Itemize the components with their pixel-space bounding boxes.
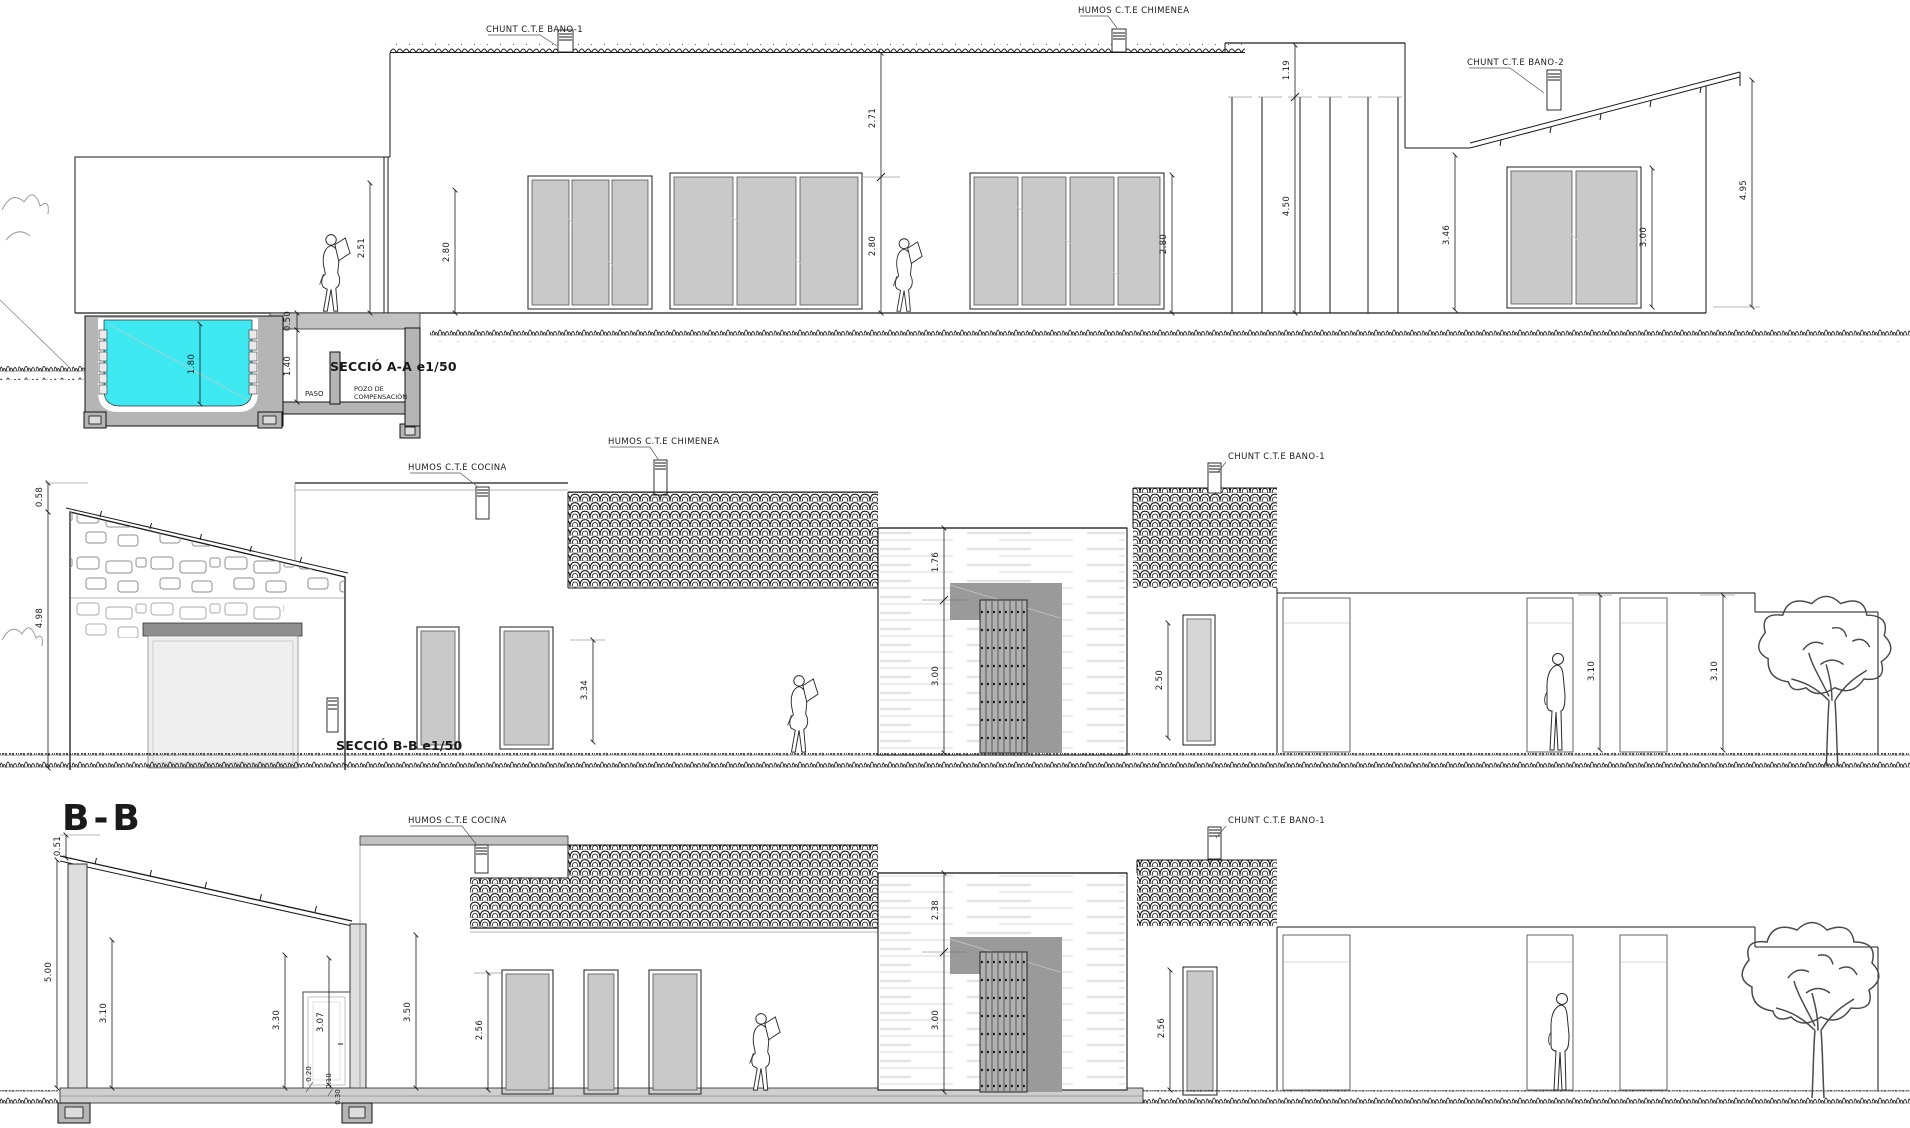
house-doors <box>502 970 701 1094</box>
pool-section <box>84 313 420 438</box>
svg-text:4.95: 4.95 <box>1739 180 1749 200</box>
flue-small <box>327 698 338 732</box>
opening <box>1283 935 1350 1090</box>
flue-cocina <box>476 487 489 519</box>
dimension-3-46: 3.46 <box>1442 155 1455 310</box>
label-chimenea: HUMOS C.T.E CHIMENEA <box>608 437 719 447</box>
section-bb-cut: B-B <box>0 798 1910 1123</box>
entrance-tower <box>878 528 1127 755</box>
ground-line-right <box>1143 1090 1910 1106</box>
svg-text:3.10: 3.10 <box>99 1003 109 1023</box>
stone-hatch <box>70 500 345 600</box>
flue-chimenea <box>1112 29 1126 52</box>
cut-wall-right <box>350 924 366 1090</box>
person-figure <box>320 235 350 311</box>
opening <box>1283 598 1350 752</box>
footing-core <box>263 416 276 424</box>
ground-line-left <box>0 366 85 380</box>
dimension-chain-center: 2.71 2.80 <box>862 53 900 313</box>
svg-text:3.00: 3.00 <box>1639 227 1649 247</box>
label-pozo-line1: POZO DE <box>354 385 384 393</box>
dimension-1-40: 1.40 <box>283 330 297 402</box>
tile-roof-right <box>1137 860 1277 926</box>
dimension-4-95: 4.95 <box>1713 80 1760 307</box>
person-figure <box>893 239 922 311</box>
svg-text:3.30: 3.30 <box>272 1010 282 1030</box>
pit-bottom-slab <box>283 402 405 414</box>
section-b-title: SECCIÓ B-B e1/50 <box>336 738 463 753</box>
roof-fascia <box>360 836 568 845</box>
window-group-b <box>670 173 862 309</box>
leader-chimenea <box>610 447 658 459</box>
svg-text:3.07: 3.07 <box>316 1012 326 1032</box>
svg-text:5.00: 5.00 <box>44 962 54 982</box>
flat-roof-fascia <box>295 483 568 560</box>
garage-lintel <box>143 623 302 636</box>
section-a-elevation: 2.51 2.80 2.71 2.80 2.80 1.19 4.50 3.46 … <box>0 6 1910 438</box>
pool-water <box>104 320 252 406</box>
dimension-0-58: 0.58 <box>35 483 88 512</box>
sections-drawing: 2.51 2.80 2.71 2.80 2.80 1.19 4.50 3.46 … <box>0 0 1910 1128</box>
svg-text:3.10: 3.10 <box>1710 661 1720 681</box>
dimension-5-00: 5.00 <box>44 860 57 1088</box>
footing-core <box>65 1107 83 1118</box>
dimension-3-50: 3.50 <box>403 935 416 1088</box>
dimension-4-98: 4.98 <box>35 512 48 768</box>
entrance-tower <box>878 873 1127 1092</box>
dimension-3-00: 3.00 <box>931 666 941 686</box>
svg-text:3.10: 3.10 <box>1587 661 1597 681</box>
label-bano2: CHUNT C.T.E BANO-2 <box>1467 58 1564 68</box>
svg-text:0.50: 0.50 <box>283 311 293 331</box>
tile-roof-left <box>568 492 878 588</box>
tree <box>1742 923 1879 1099</box>
tile-roof-right <box>1133 488 1277 588</box>
left-building-outline <box>75 53 390 314</box>
pit-right-wall <box>405 328 420 426</box>
dimension-2-51: 2.51 <box>357 183 370 313</box>
label-pozo-line2: COMPENSACIÓN <box>354 392 407 401</box>
dimension-2-71: 2.71 <box>868 108 878 128</box>
flue-bano1 <box>1208 463 1221 493</box>
dimension-3-10-a: 3.10 <box>1578 595 1612 750</box>
svg-text:3.34: 3.34 <box>580 680 590 700</box>
dimension-3-34: 3.34 <box>570 640 605 742</box>
svg-text:1.80: 1.80 <box>187 354 197 374</box>
terrain-slope <box>0 300 70 368</box>
flue-cocina <box>475 845 488 873</box>
label-paso: PASO <box>305 390 324 398</box>
window-group-c <box>970 173 1164 309</box>
dimension-chain-tall-volume: 1.19 4.50 <box>1282 45 1299 313</box>
svg-text:2.80: 2.80 <box>1159 234 1169 254</box>
section-bb-title: B-B <box>62 798 144 839</box>
svg-text:0.58: 0.58 <box>35 487 45 507</box>
tree <box>2 195 48 240</box>
dimension-2-56-right: 2.56 <box>1157 970 1170 1090</box>
svg-text:2.80: 2.80 <box>442 242 452 262</box>
right-wing <box>1183 588 1878 753</box>
dimension-1-19: 1.19 <box>1282 60 1292 80</box>
dimension-2-38: 2.38 <box>931 900 941 920</box>
partition-wall <box>384 157 388 313</box>
dimension-2-80-center: 2.80 <box>868 236 878 256</box>
svg-text:4.98: 4.98 <box>35 608 45 628</box>
svg-text:2.56: 2.56 <box>475 1020 485 1040</box>
window-group-a <box>528 176 652 309</box>
section-a-title: SECCIÓ A-A e1/50 <box>330 359 457 374</box>
dimension-1-76: 1.76 <box>931 552 941 572</box>
person-figure <box>750 1014 780 1090</box>
footing-core <box>349 1107 365 1118</box>
flue-bano2 <box>1547 70 1561 110</box>
dimension-0-30: 0.30 <box>334 1089 342 1105</box>
ground-line-left <box>0 1090 58 1105</box>
narrow-window <box>1187 619 1211 741</box>
label-bano1: CHUNT C.T.E BANO-1 <box>486 25 583 35</box>
dimension-3-10: 3.10 <box>99 940 112 1088</box>
house-doors <box>417 627 553 749</box>
dimension-4-50: 4.50 <box>1282 196 1292 216</box>
label-cocina: HUMOS C.T.E COCINA <box>408 463 507 473</box>
leader-cocina <box>410 473 477 486</box>
svg-text:3.46: 3.46 <box>1442 225 1452 245</box>
dimension-2-80-right: 2.80 <box>1159 175 1172 313</box>
svg-text:2.56: 2.56 <box>1157 1018 1167 1038</box>
label-bano1: CHUNT C.T.E BANO-1 <box>1228 816 1325 826</box>
tree <box>2 628 42 646</box>
label-cocina: HUMOS C.T.E COCINA <box>408 816 507 826</box>
dimension-3-10-b: 3.10 <box>1700 595 1735 750</box>
label-chimenea: HUMOS C.T.E CHIMENEA <box>1078 6 1189 16</box>
ground-line <box>0 753 1910 768</box>
dimension-3-30: 3.30 <box>272 955 285 1088</box>
stone-building <box>66 500 348 770</box>
opening <box>1620 598 1667 752</box>
flue-chimenea <box>654 460 667 495</box>
svg-text:2.51: 2.51 <box>357 238 367 258</box>
narrow-window <box>1187 971 1213 1091</box>
dimension-2-80-left: 2.80 <box>442 190 455 313</box>
svg-text:2.50: 2.50 <box>1155 670 1165 690</box>
opening <box>1620 935 1667 1090</box>
dimension-3-00: 3.00 <box>931 1010 941 1030</box>
tile-roof-high <box>568 845 878 928</box>
section-b-elevation: 0.58 4.98 3.34 1.76 3.00 2.50 3.10 3.10 … <box>0 437 1910 770</box>
dimension-2-56-left: 2.56 <box>474 973 502 1090</box>
dimension-2-50: 2.50 <box>1155 623 1168 738</box>
label-bano1: CHUNT C.T.E BANO-1 <box>1228 452 1325 462</box>
footing-core <box>89 416 101 424</box>
architectural-drawing-sheet: 2.51 2.80 2.71 2.80 2.80 1.19 4.50 3.46 … <box>0 0 1910 1128</box>
svg-text:1.40: 1.40 <box>283 356 293 376</box>
footing-core <box>405 427 415 435</box>
garage-door <box>148 636 298 768</box>
entry-door <box>980 600 1027 753</box>
tile-roof-low <box>470 878 568 928</box>
svg-text:0.10: 0.10 <box>325 1073 333 1089</box>
leader-bano2 <box>1469 68 1544 93</box>
left-building-cut <box>60 856 366 1090</box>
svg-text:0.51: 0.51 <box>53 836 63 856</box>
cut-wall-left <box>68 864 87 1090</box>
person-figure <box>788 676 818 752</box>
svg-text:3.50: 3.50 <box>403 1002 413 1022</box>
tall-volume <box>1225 43 1405 313</box>
leader-chimenea <box>1080 16 1117 28</box>
tree <box>1759 596 1891 766</box>
svg-text:0.30: 0.30 <box>334 1089 342 1105</box>
ground-line <box>430 328 1910 342</box>
svg-text:0.20: 0.20 <box>305 1066 313 1082</box>
flue-bano1 <box>1208 827 1221 859</box>
